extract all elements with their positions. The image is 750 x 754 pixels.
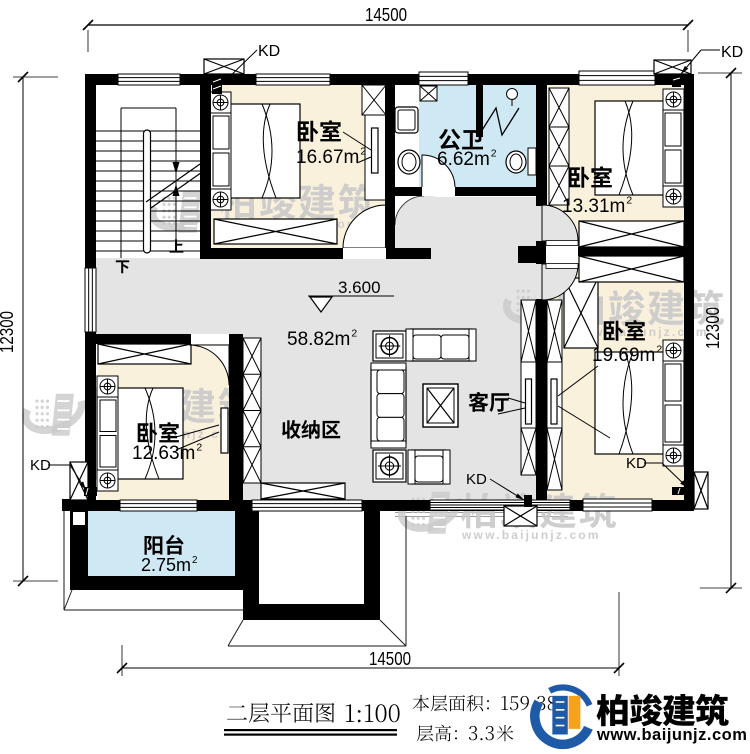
svg-text:www.baijunjz.com: www.baijunjz.com bbox=[596, 726, 747, 744]
svg-text:19.69m: 19.69m bbox=[592, 345, 655, 366]
svg-text:2: 2 bbox=[656, 344, 662, 355]
svg-text:KD: KD bbox=[258, 43, 280, 60]
svg-text:www.baijunjz.com: www.baijunjz.com bbox=[461, 528, 601, 542]
svg-text:2: 2 bbox=[626, 195, 632, 206]
svg-text:3.600: 3.600 bbox=[338, 278, 381, 297]
svg-text:12300: 12300 bbox=[703, 307, 723, 349]
svg-text:13.31m: 13.31m bbox=[562, 196, 625, 217]
svg-text:KD: KD bbox=[626, 455, 647, 472]
svg-text:2: 2 bbox=[351, 328, 357, 339]
svg-text:2.75m: 2.75m bbox=[141, 555, 191, 575]
svg-text:KD: KD bbox=[30, 457, 51, 474]
svg-text:2: 2 bbox=[192, 555, 198, 566]
svg-text:6.62m: 6.62m bbox=[437, 149, 490, 170]
svg-text:2: 2 bbox=[491, 148, 497, 159]
svg-text:2: 2 bbox=[196, 442, 202, 453]
svg-text:16.67m: 16.67m bbox=[296, 147, 359, 168]
svg-text:58.82m: 58.82m bbox=[287, 329, 350, 350]
svg-text:KD: KD bbox=[466, 471, 487, 488]
svg-text:12300: 12300 bbox=[0, 311, 17, 353]
svg-text:14500: 14500 bbox=[369, 649, 411, 669]
svg-text:KD: KD bbox=[721, 44, 743, 61]
svg-text:14500: 14500 bbox=[365, 5, 407, 25]
svg-text:2: 2 bbox=[360, 146, 366, 157]
